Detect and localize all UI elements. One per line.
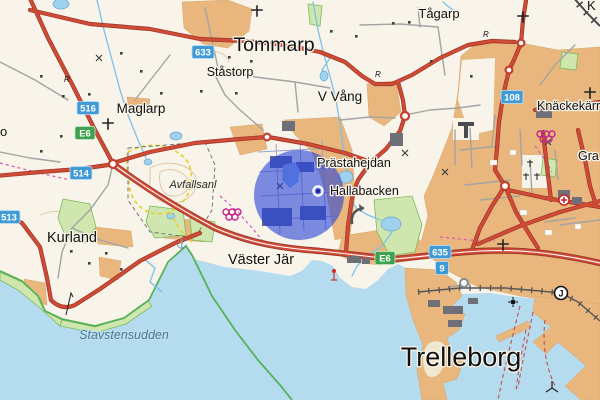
label-partial-k: K [587, 0, 596, 13]
label-partial-o: o [0, 124, 7, 139]
label-prastahejdan: Prästahejdan [317, 156, 391, 170]
road-shield-514: 514 [70, 167, 92, 180]
ruin-mark-icon: R [375, 70, 381, 79]
label-hallabacken: Hallabacken [330, 184, 399, 198]
label-trelleborg: Trelleborg [401, 342, 522, 372]
svg-text:514: 514 [73, 169, 90, 180]
label-v-vang: V Vång [318, 89, 362, 104]
label-avfallsanl: Avfallsanl [169, 179, 217, 191]
road-shield-633: 633 [192, 46, 214, 59]
road-shield-9: 9 [436, 262, 449, 275]
label-gra-partial: Gra [578, 149, 599, 163]
road-shield-e6-coast: E6 [375, 252, 395, 265]
label-knackekarr: Knäckekärr [537, 99, 600, 113]
svg-text:J: J [558, 289, 563, 299]
svg-text:108: 108 [504, 93, 520, 104]
anchor-icon: ⚓ [176, 238, 187, 249]
road-shield-e6-north: E6 [75, 127, 95, 140]
station-icon: J [555, 287, 568, 300]
label-tommarp: Tommarp [233, 34, 314, 56]
svg-text:635: 635 [432, 248, 449, 259]
road-shield-108: 108 [501, 91, 523, 104]
label-kurland: Kurland [47, 230, 97, 246]
life-ring-icon [460, 279, 468, 287]
label-stavstensudden: Stavstensudden [79, 328, 169, 342]
ruin-mark-icon: R [483, 30, 489, 39]
svg-text:513: 513 [1, 213, 17, 224]
road-shield-513: 513 [0, 211, 20, 224]
map-viewport[interactable]: ⚓ J [0, 0, 600, 400]
svg-text:516: 516 [80, 104, 96, 115]
ruin-mark-icon: R [64, 75, 70, 84]
label-stastorp: Ståstorp [207, 65, 254, 79]
hospital-icon [559, 195, 569, 205]
road-shield-516: 516 [77, 102, 99, 115]
road-shield-635: 635 [429, 246, 451, 259]
label-tagarp: Tågarp [418, 6, 459, 21]
svg-text:9: 9 [439, 264, 444, 275]
label-vaster-jar: Väster Jär [228, 252, 294, 268]
svg-text:633: 633 [195, 48, 211, 59]
svg-text:E6: E6 [379, 254, 391, 265]
map-canvas[interactable]: ⚓ J [0, 0, 600, 400]
label-maglarp: Maglarp [117, 101, 166, 116]
svg-text:E6: E6 [79, 129, 91, 140]
